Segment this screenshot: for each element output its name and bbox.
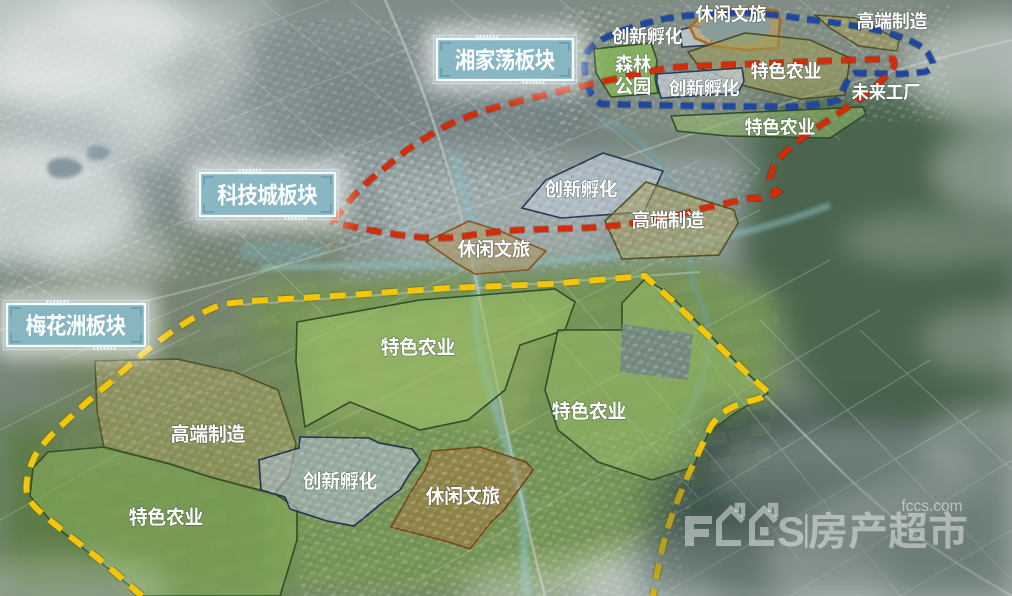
- svg-text:S: S: [777, 508, 805, 555]
- svg-text:fccs.com: fccs.com: [901, 498, 962, 515]
